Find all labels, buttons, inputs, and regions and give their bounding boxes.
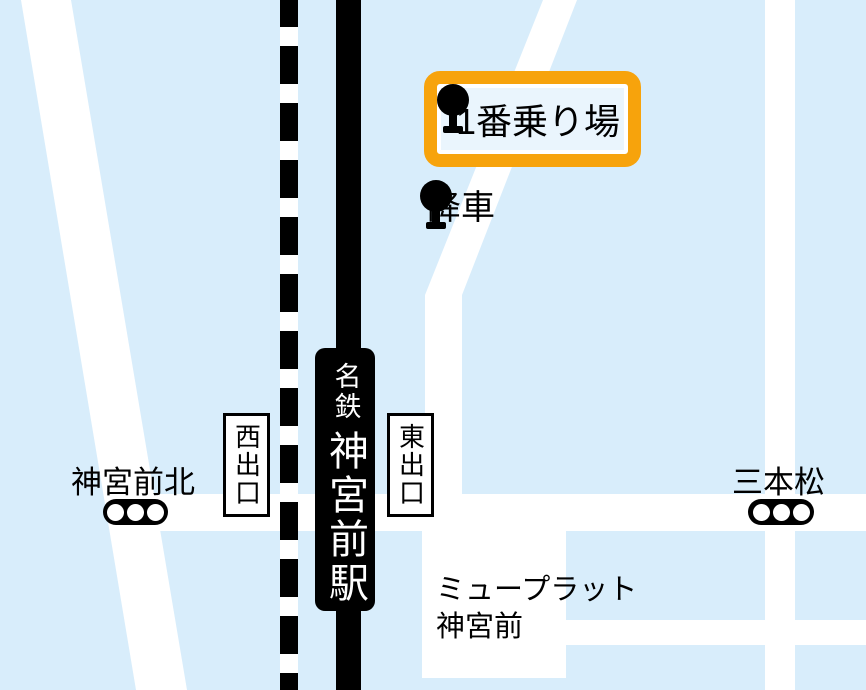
traffic-lamp <box>147 504 164 521</box>
traffic-lamp <box>753 504 770 521</box>
boarding-point-highlight-box: 1番乗り場 <box>424 71 641 167</box>
station-sign: 名鉄 神宮前駅 <box>315 348 375 611</box>
building-name-line2: 神宮前 <box>436 611 523 643</box>
traffic-lamp <box>107 504 124 521</box>
building-name-line1: ミュープラット <box>436 574 637 606</box>
east-exit-sign: 東出口 <box>387 413 434 517</box>
west-exit-label: 西出口 <box>234 423 260 507</box>
alighting-point: 降車 <box>420 180 495 229</box>
traffic-light-icon <box>103 499 168 525</box>
traffic-lamp <box>793 504 810 521</box>
west-exit-sign: 西出口 <box>223 413 270 517</box>
traffic-lamp <box>127 504 144 521</box>
intersection-sanbonmatsu-label: 三本松 <box>732 457 825 502</box>
station-operator-label: 名鉄 <box>332 362 359 422</box>
traffic-light-icon <box>748 499 814 525</box>
station-name-label: 神宮前駅 <box>325 430 365 606</box>
intersection-jingumae-kita-label: 神宮前北 <box>71 457 195 502</box>
boarding-point-label: 1番乗り場 <box>456 93 620 145</box>
building-name: ミュープラット 神宮前 <box>436 572 637 646</box>
traffic-lamp <box>773 504 790 521</box>
east-vertical-road <box>765 0 795 690</box>
station-area-map: 名鉄 神宮前駅 西出口 東出口 神宮前北 三本松 1番乗り場 <box>0 0 866 690</box>
east-exit-label: 東出口 <box>398 423 424 507</box>
